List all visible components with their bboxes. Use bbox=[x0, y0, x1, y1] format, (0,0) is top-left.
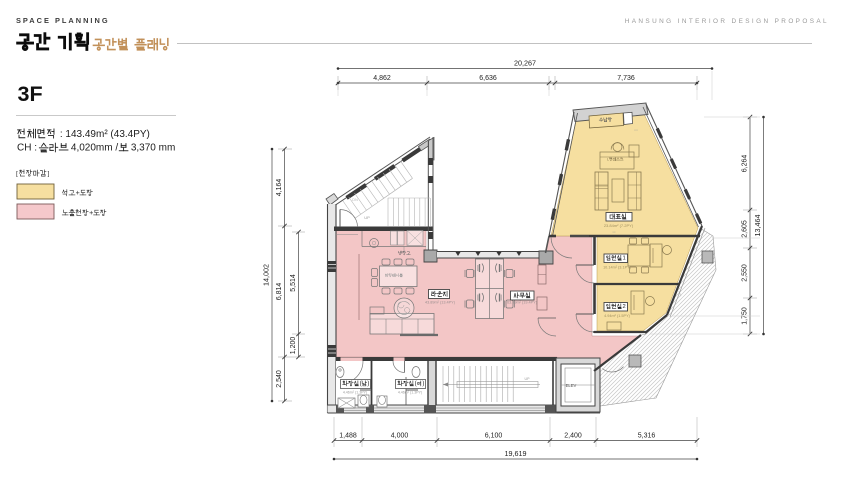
svg-text:19,619: 19,619 bbox=[505, 449, 527, 458]
svg-text:SPACE PLANNING: SPACE PLANNING bbox=[16, 16, 110, 25]
svg-text:6,264: 6,264 bbox=[742, 155, 749, 173]
svg-text:[: [ bbox=[16, 171, 18, 178]
svg-text:]: ] bbox=[48, 171, 50, 178]
svg-text:4,862: 4,862 bbox=[373, 75, 391, 82]
svg-text:HANSUNG INTERIOR DESIGN PROPOS: HANSUNG INTERIOR DESIGN PROPOSAL bbox=[625, 18, 829, 25]
svg-text:20,267: 20,267 bbox=[514, 59, 536, 68]
svg-text:(: ( bbox=[360, 381, 362, 387]
svg-text:2,550: 2,550 bbox=[742, 264, 749, 282]
svg-text:63.89m² (19.4PY): 63.89m² (19.4PY) bbox=[507, 301, 538, 305]
svg-text:13,464: 13,464 bbox=[753, 215, 762, 237]
svg-text:23.84m² (7.2PY): 23.84m² (7.2PY) bbox=[604, 223, 634, 228]
svg-text:4.46m² (1.3PY): 4.46m² (1.3PY) bbox=[398, 391, 422, 395]
svg-text:4.94m² (1.5PY): 4.94m² (1.5PY) bbox=[604, 314, 630, 318]
svg-text:L: L bbox=[607, 157, 609, 161]
svg-text:+: + bbox=[76, 189, 80, 197]
svg-text:+: + bbox=[89, 209, 93, 217]
svg-text:5,514: 5,514 bbox=[290, 274, 297, 292]
svg-text:2,540: 2,540 bbox=[276, 370, 283, 388]
svg-text:CH :: CH : bbox=[17, 143, 37, 154]
svg-text:4,020mm /: 4,020mm / bbox=[71, 143, 118, 154]
svg-text:UP: UP bbox=[364, 215, 370, 220]
svg-text:): ) bbox=[422, 381, 424, 387]
svg-text:6,100: 6,100 bbox=[485, 433, 503, 440]
svg-text:1,200: 1,200 bbox=[290, 337, 297, 355]
svg-text:4.46m² (1.3PY): 4.46m² (1.3PY) bbox=[343, 391, 367, 395]
svg-text:(: ( bbox=[415, 381, 417, 387]
svg-text:): ) bbox=[367, 381, 369, 387]
svg-text:14,002: 14,002 bbox=[262, 264, 271, 286]
svg-text:1,488: 1,488 bbox=[339, 433, 357, 440]
svg-text:UP: UP bbox=[525, 377, 531, 381]
svg-text:43.89m² (13.4PY): 43.89m² (13.4PY) bbox=[425, 301, 456, 305]
svg-text:7,736: 7,736 bbox=[617, 75, 635, 82]
svg-text:4,000: 4,000 bbox=[391, 433, 409, 440]
svg-text:3,370 mm: 3,370 mm bbox=[131, 143, 175, 154]
svg-text:4,164: 4,164 bbox=[276, 179, 283, 197]
svg-text:▫▫▫: ▫▫▫ bbox=[612, 230, 615, 234]
svg-text:2: 2 bbox=[623, 304, 626, 310]
svg-text:10.14m² (3.1PY): 10.14m² (3.1PY) bbox=[603, 266, 632, 270]
svg-text:DN: DN bbox=[352, 197, 358, 202]
svg-text:6,636: 6,636 bbox=[479, 75, 497, 82]
svg-text:6,814: 6,814 bbox=[276, 283, 283, 301]
svg-text:: 143.49m² (43.4PY): : 143.49m² (43.4PY) bbox=[60, 129, 150, 140]
svg-text:ELEV: ELEV bbox=[566, 383, 577, 388]
svg-text:5,316: 5,316 bbox=[638, 433, 656, 440]
svg-text:2,605: 2,605 bbox=[742, 220, 749, 238]
svg-text:2,400: 2,400 bbox=[564, 433, 582, 440]
svg-text:▫▫▫▫: ▫▫▫▫ bbox=[634, 128, 638, 132]
svg-text:3F: 3F bbox=[18, 82, 43, 106]
svg-text:1: 1 bbox=[623, 256, 626, 262]
